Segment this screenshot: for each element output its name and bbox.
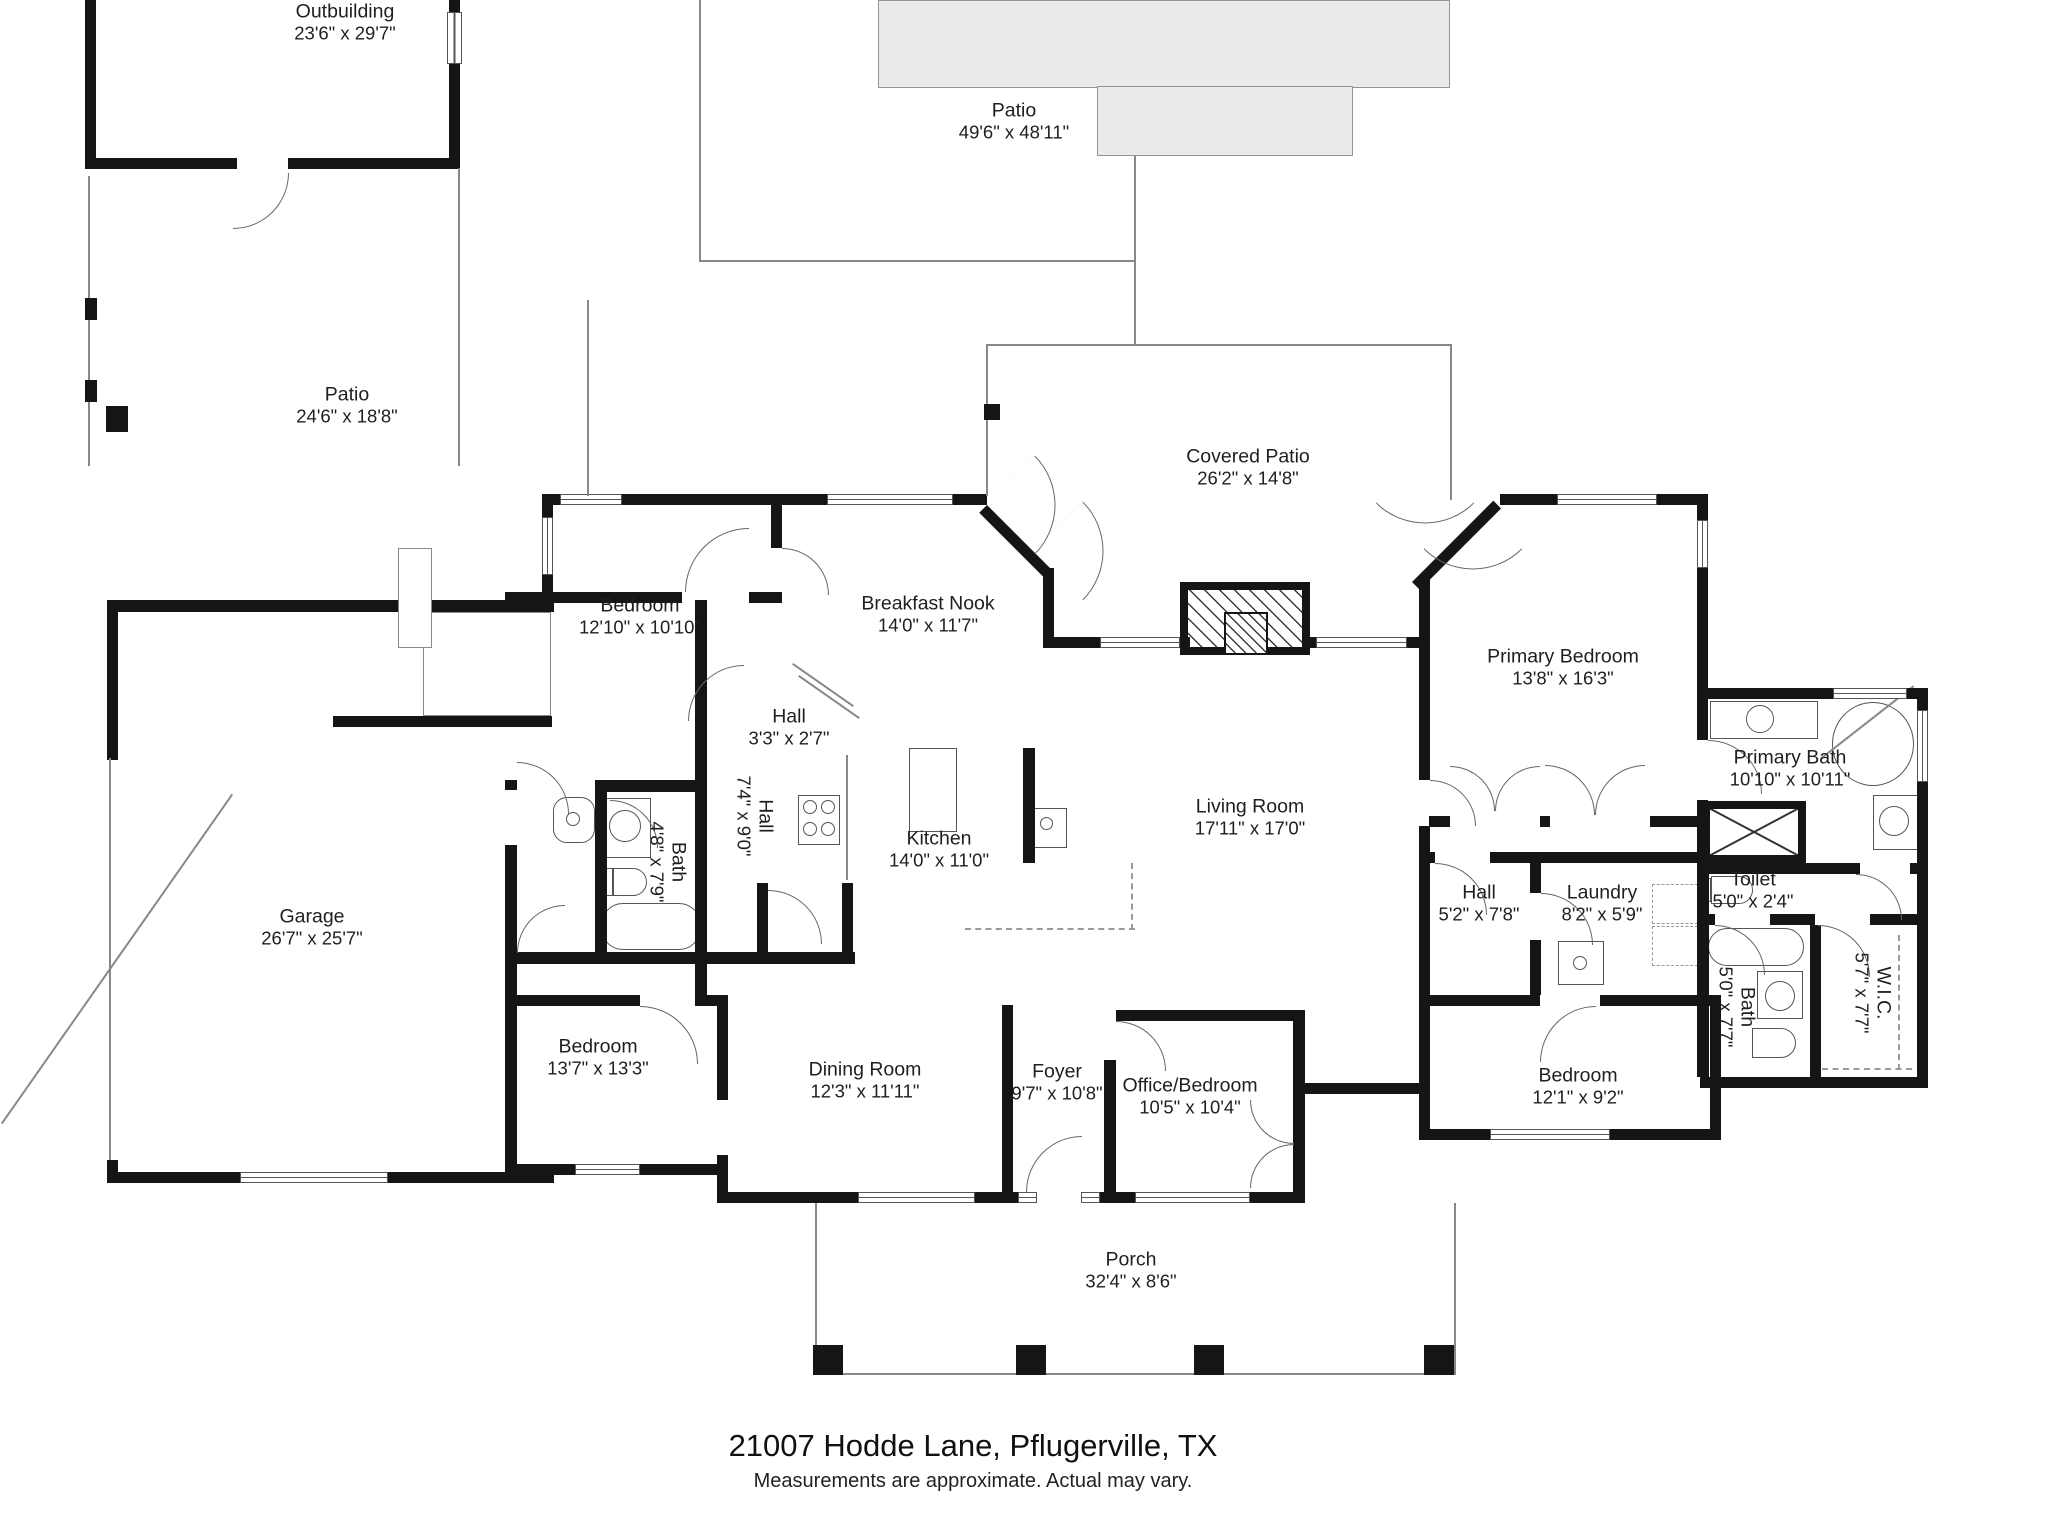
wall: [505, 995, 640, 1006]
wall: [1293, 1021, 1305, 1192]
room-label-bath-back: Bath5'0" x 7'7": [1716, 967, 1759, 1048]
counter-dashed-line: [1131, 863, 1133, 930]
wall: [1116, 1010, 1305, 1021]
wall: [107, 600, 118, 760]
door-swing-icon: [1116, 1021, 1166, 1071]
sink-icon: [1765, 981, 1795, 1011]
wall: [1540, 816, 1550, 827]
wall: [717, 995, 728, 1100]
bathtub-icon: [601, 903, 701, 950]
room-label-patio-large: Patio49'6" x 48'11": [959, 100, 1069, 143]
door-swing-icon: [1495, 766, 1540, 811]
boundary-line: [699, 260, 1136, 262]
door-swing-icon: [1595, 765, 1645, 815]
room-label-foyer: Foyer9'7" x 10'8": [1011, 1061, 1102, 1104]
counter-dashed-line: [965, 928, 1135, 930]
stoop: [398, 548, 432, 648]
wall: [107, 600, 554, 612]
porch-post-icon: [1424, 1345, 1454, 1375]
wall: [1419, 577, 1430, 637]
toilet-icon: [613, 868, 647, 896]
room-label-kitchen: Kitchen14'0" x 11'0": [889, 828, 989, 871]
door-swing-icon: [1856, 874, 1902, 920]
attic-line: [1, 794, 233, 1124]
sink-icon: [1040, 817, 1053, 830]
room-label-outbuilding: Outbuilding23'6" x 29'7": [294, 1, 395, 44]
room-label-covered-patio: Covered Patio26'2" x 14'8": [1186, 446, 1310, 489]
room-label-primary-bedroom: Primary Bedroom13'8" x 16'3": [1487, 646, 1639, 689]
door-swing-icon: [1250, 1144, 1294, 1188]
room-label-wic: W.I.C.5'7" x 7'7": [1852, 953, 1895, 1034]
door-swing-icon: [685, 528, 749, 592]
wall: [505, 1164, 575, 1175]
door-swing-icon: [233, 173, 289, 229]
room-label-garage: Garage26'7" x 25'7": [261, 906, 362, 949]
door-swing-icon: [782, 548, 829, 595]
patio-top-stem: [1097, 86, 1353, 156]
wall: [697, 952, 855, 964]
boundary-line: [815, 1373, 1456, 1375]
wall: [1770, 914, 1815, 925]
wall: [542, 494, 553, 517]
room-label-breakfast-nook: Breakfast Nook14'0" x 11'7": [861, 593, 994, 636]
wall: [1043, 568, 1054, 648]
room-label-primary-bath: Primary Bath10'10" x 10'11": [1730, 747, 1851, 790]
sink-icon: [1879, 806, 1909, 836]
room-label-bath-hall: Bath4'8" x 7'9": [647, 822, 690, 903]
boundary-line: [986, 344, 988, 496]
door-swing-icon: [517, 905, 565, 953]
washer-dryer-icon: [1652, 884, 1698, 924]
wall: [107, 1172, 243, 1183]
wall: [1697, 568, 1708, 699]
window-icon: [1316, 637, 1407, 648]
attic-line: [792, 663, 854, 707]
wall: [1419, 637, 1430, 780]
room-label-hall-center: Hall7'4" x 9'0": [734, 776, 777, 857]
window-icon: [1100, 637, 1180, 648]
window-icon: [447, 12, 462, 64]
wall: [1697, 494, 1708, 520]
wall: [1697, 688, 1833, 699]
wall: [975, 1192, 1018, 1203]
window-icon: [542, 517, 553, 575]
boundary-line: [1450, 344, 1452, 500]
wall: [1917, 688, 1928, 710]
wall: [505, 780, 517, 790]
room-label-porch: Porch32'4" x 8'6": [1085, 1249, 1176, 1292]
door-swing-icon: [1026, 1136, 1082, 1192]
sink-icon: [1573, 956, 1587, 970]
wall: [505, 845, 517, 1172]
wall: [85, 158, 237, 169]
address: 21007 Hodde Lane, Pflugerville, TX: [473, 1428, 1473, 1464]
window-icon: [1557, 494, 1657, 505]
patio-top-area: [878, 0, 1450, 88]
window-icon: [1917, 710, 1928, 782]
window-icon: [1490, 1129, 1610, 1140]
washer-dryer-icon: [1652, 926, 1698, 966]
wall: [1104, 1060, 1116, 1192]
wall: [1180, 637, 1190, 648]
wall: [695, 952, 707, 1006]
stove-burner-icon: [803, 800, 817, 814]
room-label-office-bedroom: Office/Bedroom10'5" x 10'4": [1122, 1075, 1257, 1118]
boundary-line: [458, 168, 460, 466]
boundary-line: [986, 344, 1452, 346]
toilet-icon: [1752, 1028, 1796, 1058]
disclaimer: Measurements are approximate. Actual may…: [473, 1470, 1473, 1493]
window-icon: [560, 494, 622, 505]
wall: [1490, 852, 1702, 863]
porch-post-icon: [1016, 1345, 1046, 1375]
wall: [1530, 863, 1541, 893]
room-label-toilet: Toilet5'0" x 2'4": [1713, 869, 1794, 912]
wall: [1419, 852, 1435, 863]
floor-plan: Outbuilding23'6" x 29'7" Patio49'6" x 48…: [0, 0, 2048, 1536]
counter-line: [846, 755, 848, 880]
kitchen-island-icon: [909, 748, 957, 832]
wall: [1419, 1129, 1490, 1140]
wall: [622, 494, 778, 505]
wic-shelf-line: [1822, 1068, 1912, 1070]
porch-post-icon: [813, 1345, 843, 1375]
room-label-dining-room: Dining Room12'3" x 11'11": [809, 1059, 922, 1102]
window-icon: [827, 494, 953, 505]
room-label-living-room: Living Room17'11" x 17'0": [1195, 796, 1305, 839]
post: [984, 404, 1000, 420]
window-icon: [1081, 1192, 1100, 1203]
window-icon: [240, 1172, 388, 1183]
wall: [1305, 1083, 1430, 1094]
window-icon: [575, 1164, 640, 1175]
boundary-line: [587, 300, 589, 496]
wall: [1100, 1192, 1135, 1203]
wall: [728, 1192, 858, 1203]
wall: [771, 505, 782, 548]
post: [85, 380, 97, 402]
wall: [595, 780, 707, 792]
boundary-line: [1454, 1203, 1456, 1375]
boundary-line: [88, 176, 90, 466]
wall: [757, 883, 768, 953]
wall: [1429, 995, 1540, 1006]
wall: [1600, 995, 1710, 1006]
room-label-bedroom-southwest: Bedroom13'7" x 13'3": [547, 1036, 648, 1079]
garage-closet: [423, 612, 551, 716]
door-swing-icon: [1545, 765, 1595, 815]
wall: [749, 592, 782, 603]
room-label-bedroom-east: Bedroom12'1" x 9'2": [1532, 1065, 1623, 1108]
wall: [1697, 863, 1709, 1077]
porch-post-icon: [1194, 1345, 1224, 1375]
wall: [1043, 637, 1100, 648]
wall: [333, 716, 552, 727]
wall: [1500, 494, 1557, 505]
water-heater-top-icon: [566, 812, 580, 826]
wall: [778, 494, 827, 505]
fireplace-inner-icon: [1224, 612, 1268, 655]
post: [85, 298, 97, 320]
window-icon: [1135, 1192, 1250, 1203]
wall: [1530, 940, 1541, 995]
door-swing-icon: [1540, 1006, 1596, 1062]
wall: [1917, 782, 1928, 1088]
wall: [1910, 863, 1928, 874]
wall: [1697, 699, 1708, 740]
room-label-patio-left: Patio24'6" x 18'8": [296, 384, 397, 427]
post: [106, 406, 128, 432]
wall: [505, 952, 707, 964]
wall: [1610, 1129, 1721, 1140]
wall: [288, 158, 460, 169]
door-swing-icon: [768, 890, 822, 944]
shower-icon: [1702, 801, 1806, 863]
wall: [640, 1164, 717, 1175]
sink-icon: [1746, 705, 1774, 733]
wic-shelf-line: [1898, 935, 1900, 1070]
stove-burner-icon: [821, 800, 835, 814]
boundary-line: [699, 0, 701, 262]
room-label-laundry: Laundry8'2" x 5'9": [1562, 882, 1643, 925]
wall: [1700, 1077, 1928, 1088]
window-icon: [1833, 688, 1907, 699]
window-icon: [1697, 520, 1708, 568]
wall: [85, 0, 96, 168]
boundary-line: [1134, 156, 1136, 346]
room-label-hall-small: Hall3'3" x 2'7": [749, 706, 830, 749]
wall: [1250, 1192, 1305, 1203]
wall: [595, 780, 607, 960]
boundary-line: [109, 758, 111, 1160]
stove-burner-icon: [821, 822, 835, 836]
wall: [953, 494, 987, 505]
wall: [1407, 637, 1419, 648]
window-icon: [1018, 1192, 1037, 1203]
wall: [842, 883, 853, 953]
window-icon: [858, 1192, 975, 1203]
wall: [717, 1155, 728, 1203]
room-label-hall-east: Hall5'2" x 7'8": [1439, 882, 1520, 925]
wall: [1023, 748, 1035, 863]
room-label-bedroom-top: Bedroom12'10" x 10'10": [579, 595, 701, 638]
door-swing-icon: [517, 762, 569, 814]
stove-burner-icon: [803, 822, 817, 836]
